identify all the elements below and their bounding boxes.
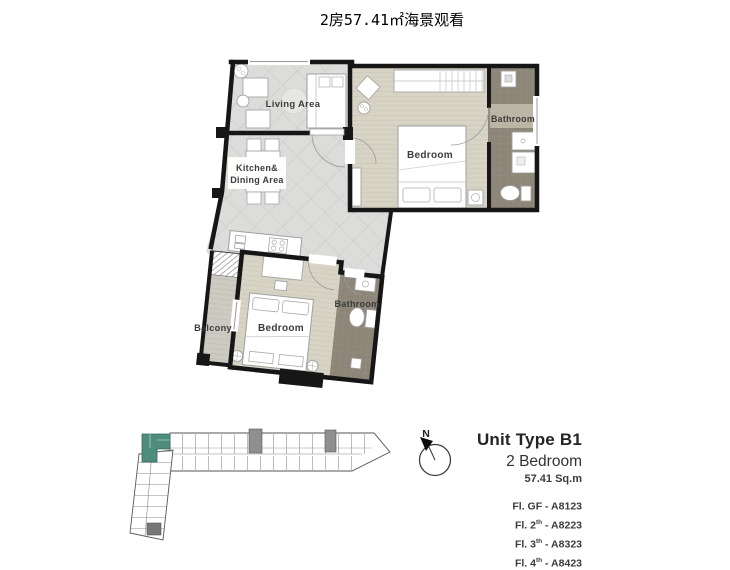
entry-door-leaf bbox=[310, 129, 344, 135]
nightstand-icon bbox=[468, 190, 483, 205]
floor-plan-svg: Living Area Kitchen& Dining Area Bedroom… bbox=[0, 0, 730, 570]
site-plan bbox=[130, 429, 390, 540]
floor-unit-code: - A8123 bbox=[542, 501, 582, 513]
floor-plan-page: 2房57.41㎡海景观看 bbox=[0, 0, 730, 570]
floor-row-4: Fl. 4th - A8423 bbox=[477, 553, 582, 570]
unit-info-block: Unit Type B1 2 Bedroom 57.41 Sq.m Fl. GF… bbox=[477, 430, 582, 570]
floor-row-2: Fl. 2th - A8223 bbox=[477, 515, 582, 534]
floor-row-3: Fl. 3th - A8323 bbox=[477, 534, 582, 553]
floor-prefix: Fl. 2 bbox=[515, 519, 536, 531]
floor-unit-code: - A8323 bbox=[542, 538, 582, 550]
bathroom2-label: Bathroom bbox=[335, 299, 380, 309]
kitchen-label-line1: Kitchen& bbox=[236, 163, 278, 173]
compass: N bbox=[420, 428, 451, 476]
unit-floor-plan: Living Area Kitchen& Dining Area Bedroom… bbox=[194, 58, 541, 393]
core-block bbox=[147, 523, 161, 535]
bed-icon bbox=[398, 126, 466, 208]
floor-prefix: Fl. 4 bbox=[515, 557, 536, 569]
bedroom1-label: Bedroom bbox=[407, 150, 453, 161]
floor-list: Fl. GF - A8123 Fl. 2th - A8223 Fl. 3th -… bbox=[477, 496, 582, 570]
north-label: N bbox=[422, 428, 430, 440]
floor-prefix: Fl. GF bbox=[512, 501, 542, 513]
bathroom1-label: Bathroom bbox=[491, 114, 535, 124]
unit-area: 57.41 Sq.m bbox=[477, 473, 582, 485]
floor-prefix: Fl. 3 bbox=[515, 538, 536, 550]
ac-ledge bbox=[210, 251, 242, 278]
floor-unit-code: - A8223 bbox=[542, 519, 582, 531]
plant-icon bbox=[234, 64, 248, 78]
wardrobe-icon bbox=[394, 70, 484, 92]
plant-icon bbox=[358, 102, 370, 114]
floor-row-gf: Fl. GF - A8123 bbox=[477, 496, 582, 515]
bedroom2-label: Bedroom bbox=[258, 323, 304, 334]
compass-needle bbox=[429, 447, 435, 460]
sink-icon bbox=[355, 276, 376, 292]
living-area-label: Living Area bbox=[266, 99, 321, 110]
cabinet-icon bbox=[352, 168, 361, 206]
unit-type-title: Unit Type B1 bbox=[477, 430, 582, 450]
core-block bbox=[249, 429, 262, 453]
shower-drain-icon bbox=[351, 358, 362, 369]
balcony-label: Balcony bbox=[194, 323, 232, 333]
unit-bedrooms: 2 Bedroom bbox=[477, 453, 582, 471]
core-block bbox=[325, 430, 336, 452]
vanity-icon bbox=[512, 132, 535, 173]
floor-unit-code: - A8423 bbox=[542, 557, 582, 569]
washer-icon bbox=[501, 71, 516, 87]
kitchen-label-line2: Dining Area bbox=[230, 175, 284, 185]
toilet-icon bbox=[501, 186, 532, 202]
upper-bedroom-block bbox=[345, 66, 541, 210]
